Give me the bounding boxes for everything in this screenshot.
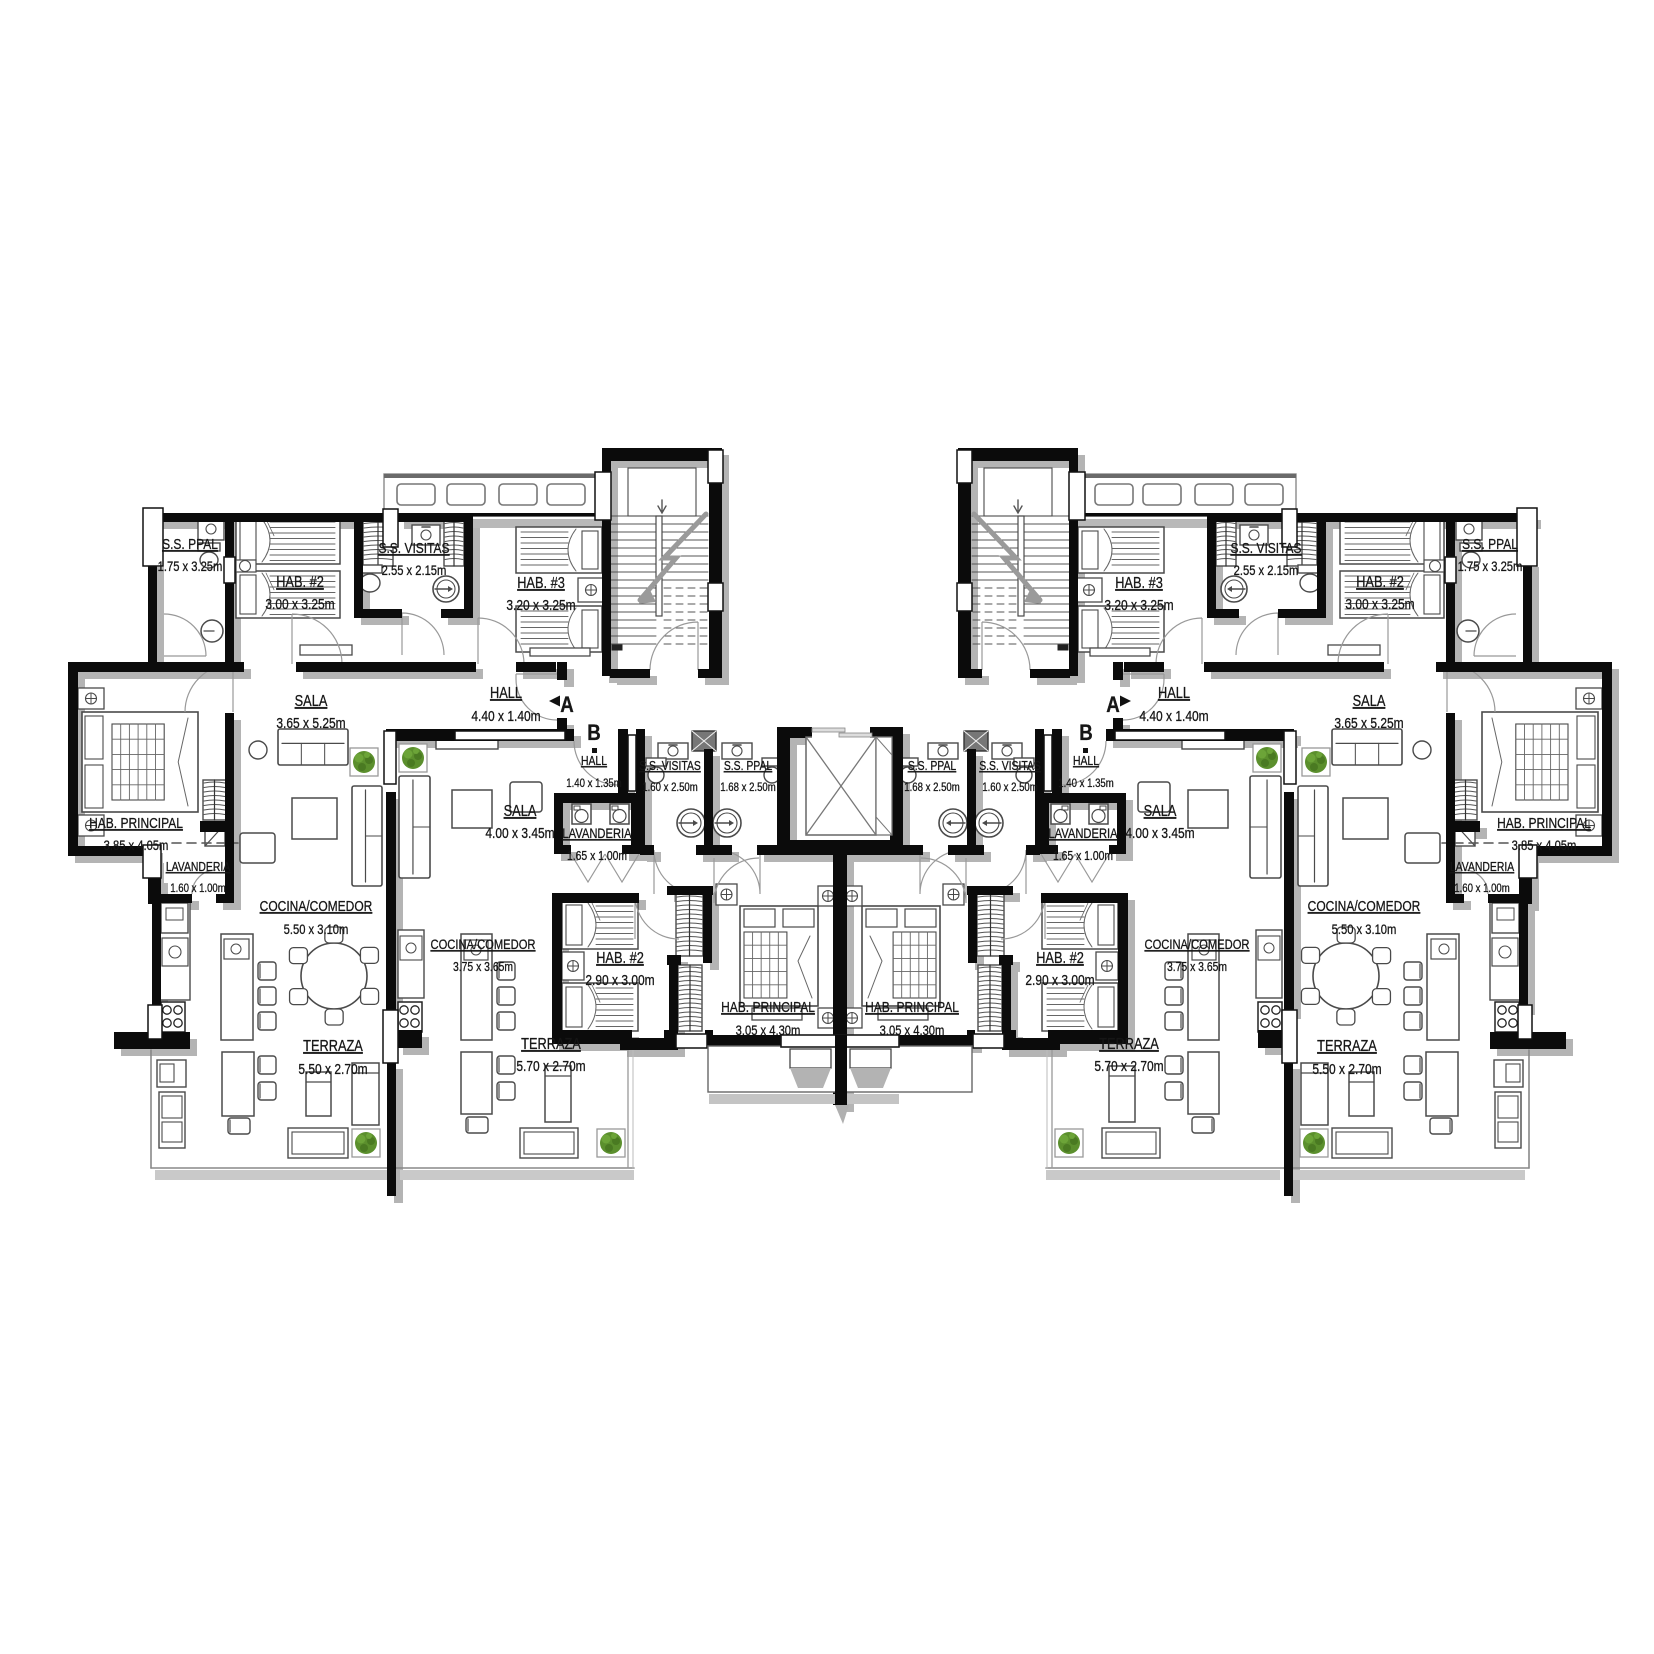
svg-text:HAB. #2: HAB. #2 xyxy=(596,950,644,968)
svg-text:HAB. #2: HAB. #2 xyxy=(1356,574,1404,592)
svg-text:2.55 x 2.15m: 2.55 x 2.15m xyxy=(1234,563,1299,578)
svg-text:S.S. VISITAS: S.S. VISITAS xyxy=(378,540,449,557)
svg-text:HAB. #2: HAB. #2 xyxy=(1036,950,1084,968)
svg-text:1.60 x 1.00m: 1.60 x 1.00m xyxy=(1454,882,1509,895)
svg-text:4.40 x 1.40m: 4.40 x 1.40m xyxy=(1139,708,1208,725)
svg-text:A: A xyxy=(1106,694,1120,718)
svg-text:3.85 x 4.05m: 3.85 x 4.05m xyxy=(104,838,169,853)
svg-text:1.40 x 1.35m: 1.40 x 1.35m xyxy=(1058,777,1113,790)
svg-text:S.S. VISITAS: S.S. VISITAS xyxy=(639,759,701,773)
svg-text:COCINA/COMEDOR: COCINA/COMEDOR xyxy=(1308,898,1421,915)
svg-text:COCINA/COMEDOR: COCINA/COMEDOR xyxy=(260,898,373,915)
svg-text:3.00 x 3.25m: 3.00 x 3.25m xyxy=(1345,596,1414,613)
svg-text:LAVANDERIA: LAVANDERIA xyxy=(1048,826,1118,841)
svg-text:HALL: HALL xyxy=(490,685,522,703)
svg-text:COCINA/COMEDOR: COCINA/COMEDOR xyxy=(1145,937,1250,952)
svg-text:4.40 x 1.40m: 4.40 x 1.40m xyxy=(471,708,540,725)
svg-text:5.50 x 3.10m: 5.50 x 3.10m xyxy=(284,922,349,937)
svg-text:4.00 x 3.45m: 4.00 x 3.45m xyxy=(1125,825,1194,842)
svg-text:1.68 x 2.50m: 1.68 x 2.50m xyxy=(720,781,775,794)
svg-text:HAB. PRINCIPAL: HAB. PRINCIPAL xyxy=(1497,815,1591,832)
svg-text:COCINA/COMEDOR: COCINA/COMEDOR xyxy=(431,937,536,952)
svg-text:LAVANDERIA: LAVANDERIA xyxy=(562,826,632,841)
svg-text:S.S. VISITAS: S.S. VISITAS xyxy=(979,759,1041,773)
svg-text:5.50 x 3.10m: 5.50 x 3.10m xyxy=(1332,922,1397,937)
svg-text:5.50 x 2.70m: 5.50 x 2.70m xyxy=(298,1061,367,1078)
svg-text:HAB. PRINCIPAL: HAB. PRINCIPAL xyxy=(865,999,959,1016)
svg-text:3.20 x 3.25m: 3.20 x 3.25m xyxy=(506,597,575,614)
svg-text:SALA: SALA xyxy=(1144,803,1177,821)
svg-text:1.68 x 2.50m: 1.68 x 2.50m xyxy=(904,781,959,794)
svg-text:HAB. #3: HAB. #3 xyxy=(1115,575,1163,593)
svg-text:S.S. PPAL: S.S. PPAL xyxy=(908,759,957,773)
svg-text:3.00 x 3.25m: 3.00 x 3.25m xyxy=(265,596,334,613)
svg-text:3.75 x 3.65m: 3.75 x 3.65m xyxy=(453,960,513,974)
svg-text:SALA: SALA xyxy=(295,693,328,711)
svg-text:3.85 x 4.05m: 3.85 x 4.05m xyxy=(1512,838,1577,853)
svg-text:TERRAZA: TERRAZA xyxy=(1317,1038,1377,1056)
svg-text:3.75 x 3.65m: 3.75 x 3.65m xyxy=(1167,960,1227,974)
svg-text:SALA: SALA xyxy=(504,803,537,821)
svg-text:B: B xyxy=(1079,722,1093,746)
svg-text:1.40 x 1.35m: 1.40 x 1.35m xyxy=(566,777,621,790)
svg-text:S.S. VISITAS: S.S. VISITAS xyxy=(1230,540,1301,557)
svg-text:1.75 x 3.25m: 1.75 x 3.25m xyxy=(158,559,223,574)
svg-text:HAB. #2: HAB. #2 xyxy=(276,574,324,592)
svg-text:HALL: HALL xyxy=(581,754,607,768)
svg-text:TERRAZA: TERRAZA xyxy=(303,1038,363,1056)
svg-text:1.75 x 3.25m: 1.75 x 3.25m xyxy=(1458,559,1523,574)
svg-text:3.20 x 3.25m: 3.20 x 3.25m xyxy=(1104,597,1173,614)
svg-text:HAB. PRINCIPAL: HAB. PRINCIPAL xyxy=(721,999,815,1016)
svg-text:HALL: HALL xyxy=(1073,754,1099,768)
svg-text:TERRAZA: TERRAZA xyxy=(1099,1036,1159,1054)
svg-text:3.05 x 4.30m: 3.05 x 4.30m xyxy=(880,1023,945,1038)
svg-text:LAVANDERIA: LAVANDERIA xyxy=(1450,860,1514,874)
svg-text:1.65 x 1.00m: 1.65 x 1.00m xyxy=(567,849,627,863)
svg-text:S.S. PPAL: S.S. PPAL xyxy=(724,759,773,773)
svg-text:1.60 x 2.50m: 1.60 x 2.50m xyxy=(982,781,1037,794)
svg-text:3.65 x 5.25m: 3.65 x 5.25m xyxy=(1334,715,1403,732)
svg-text:3.65 x 5.25m: 3.65 x 5.25m xyxy=(276,715,345,732)
svg-text:S.S. PPAL: S.S. PPAL xyxy=(1462,536,1518,553)
svg-text:2.90 x 3.00m: 2.90 x 3.00m xyxy=(585,972,654,989)
svg-text:2.90 x 3.00m: 2.90 x 3.00m xyxy=(1025,972,1094,989)
svg-text:S.S. PPAL: S.S. PPAL xyxy=(162,536,218,553)
svg-text:1.60 x 2.50m: 1.60 x 2.50m xyxy=(642,781,697,794)
svg-text:5.70 x 2.70m: 5.70 x 2.70m xyxy=(516,1058,585,1075)
svg-text:HAB. #3: HAB. #3 xyxy=(517,575,565,593)
svg-text:1.65 x 1.00m: 1.65 x 1.00m xyxy=(1053,849,1113,863)
svg-text:LAVANDERIA: LAVANDERIA xyxy=(166,860,230,874)
svg-text:5.50 x 2.70m: 5.50 x 2.70m xyxy=(1312,1061,1381,1078)
svg-text:A: A xyxy=(560,694,574,718)
svg-text:1.60 x 1.00m: 1.60 x 1.00m xyxy=(170,882,225,895)
svg-text:3.05 x 4.30m: 3.05 x 4.30m xyxy=(736,1023,801,1038)
svg-text:4.00 x 3.45m: 4.00 x 3.45m xyxy=(485,825,554,842)
svg-text:5.70 x 2.70m: 5.70 x 2.70m xyxy=(1094,1058,1163,1075)
svg-text:SALA: SALA xyxy=(1353,693,1386,711)
svg-text:2.55 x 2.15m: 2.55 x 2.15m xyxy=(382,563,447,578)
svg-text:B: B xyxy=(587,722,601,746)
svg-text:HAB. PRINCIPAL: HAB. PRINCIPAL xyxy=(89,815,183,832)
svg-text:TERRAZA: TERRAZA xyxy=(521,1036,581,1054)
svg-text:HALL: HALL xyxy=(1158,685,1190,703)
